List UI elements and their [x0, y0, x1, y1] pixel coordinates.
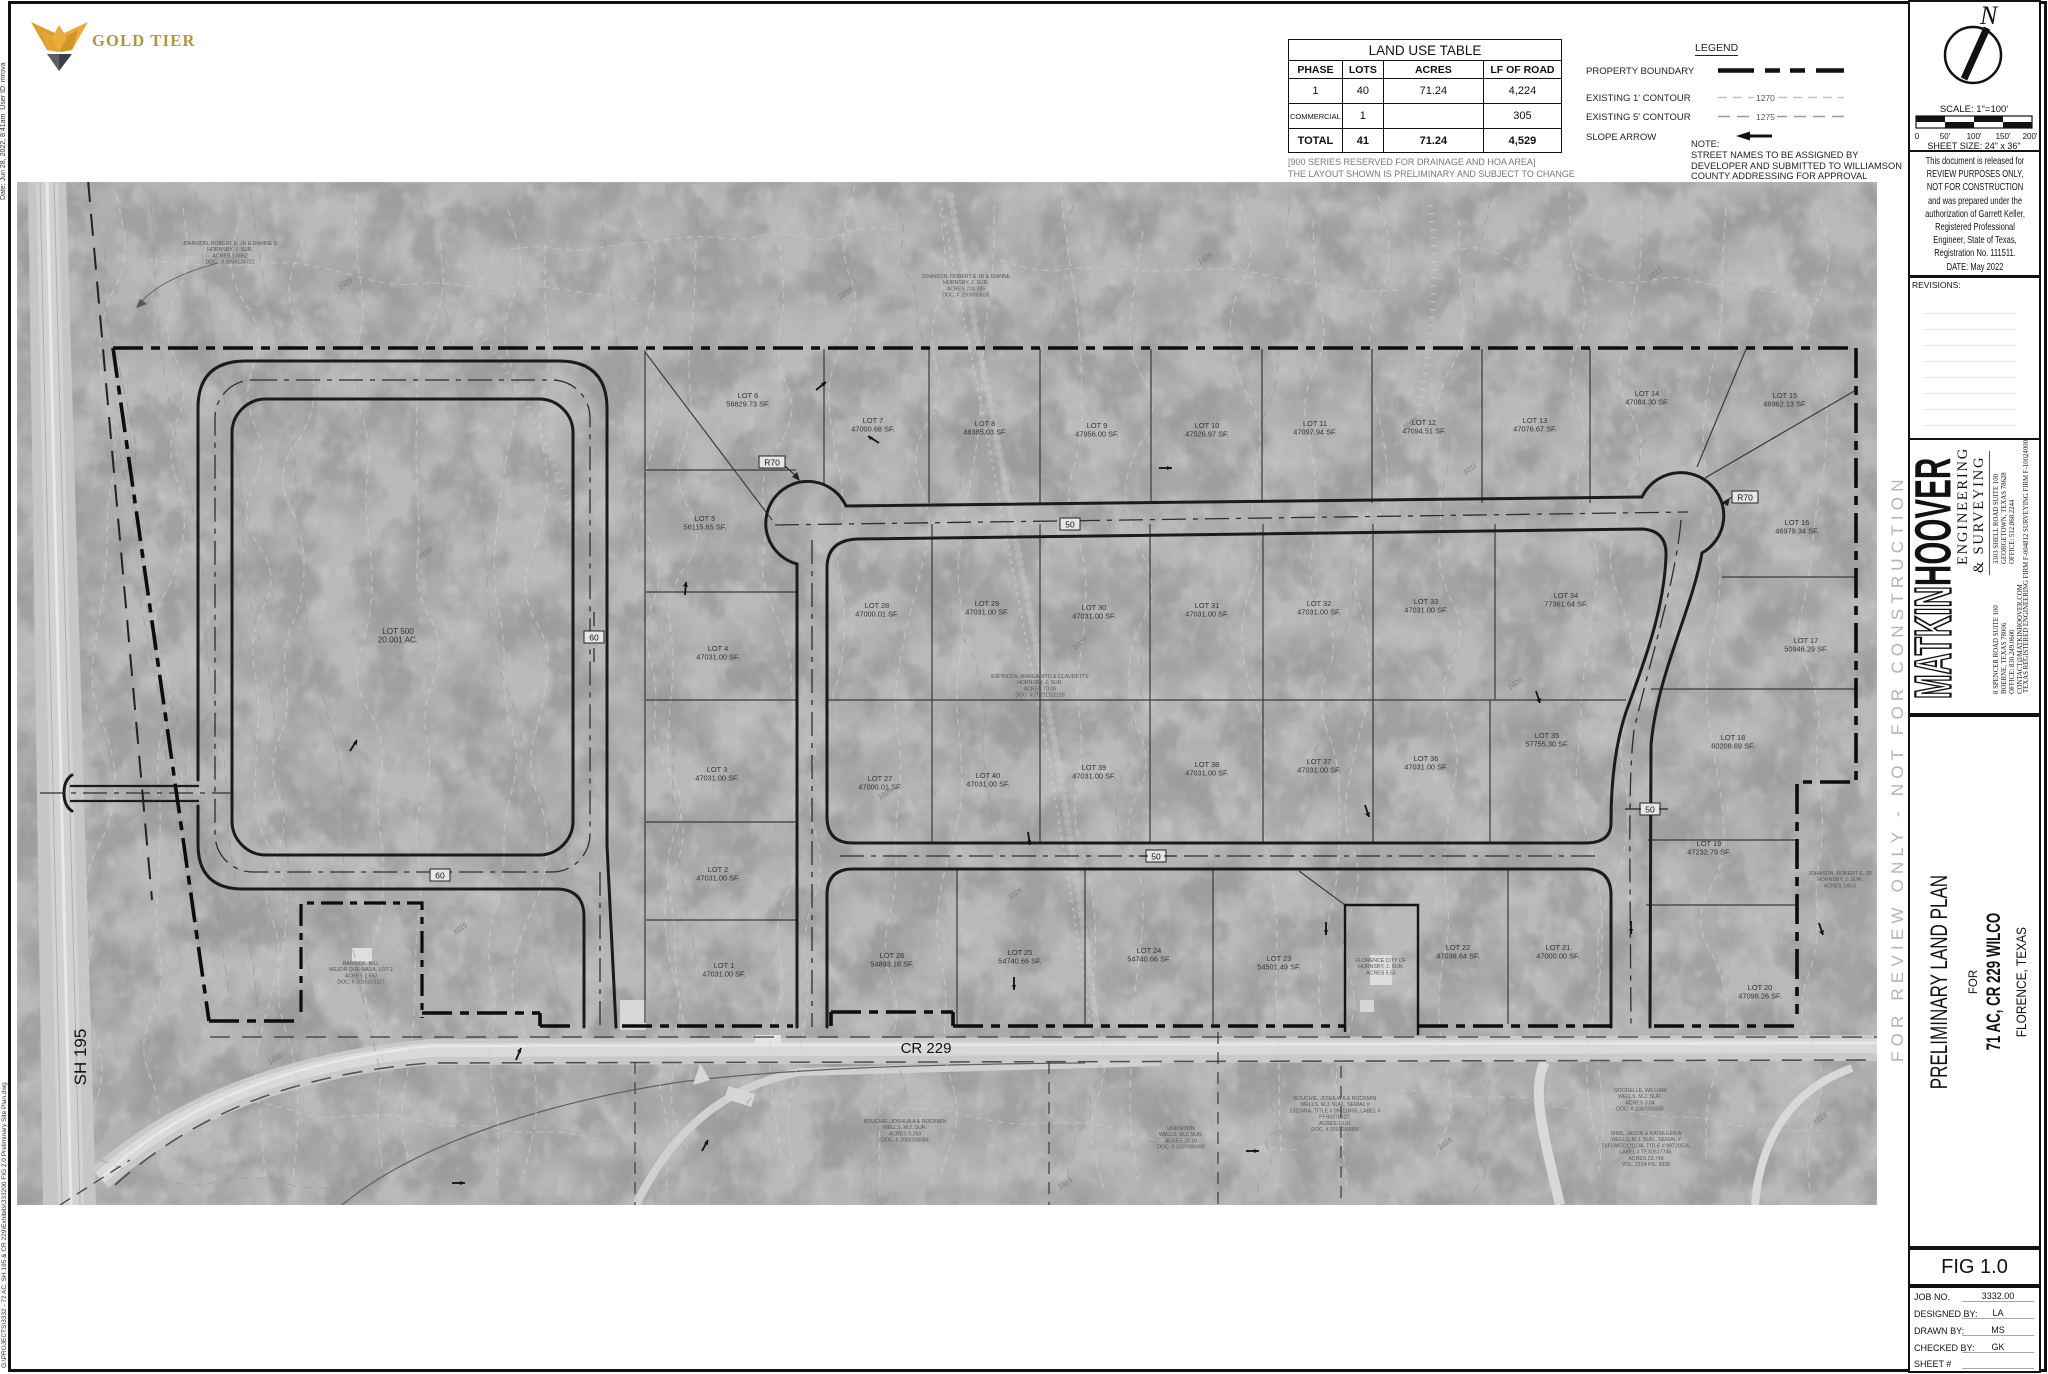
svg-text:0: 0 — [1915, 132, 1920, 141]
svg-text:54740.66 SF.: 54740.66 SF. — [1127, 955, 1171, 964]
svg-text:47031.00 SF.: 47031.00 SF. — [1297, 766, 1341, 775]
svg-text:48385.03 SF.: 48385.03 SF. — [963, 428, 1007, 437]
svg-text:47000.68 SF.: 47000.68 SF. — [851, 425, 895, 434]
svg-text:47031.00 SF.: 47031.00 SF. — [1404, 606, 1448, 615]
svg-text:47031.00 SF.: 47031.00 SF. — [1185, 769, 1229, 778]
svg-text:CR 229: CR 229 — [901, 1040, 952, 1057]
svg-text:47097.94 SF.: 47097.94 SF. — [1293, 428, 1337, 437]
svg-text:47526.97 SF.: 47526.97 SF. — [1185, 430, 1229, 439]
svg-text:60208.69 SF.: 60208.69 SF. — [1711, 742, 1755, 751]
svg-text:60: 60 — [589, 633, 599, 643]
svg-text:57755.30 SF.: 57755.30 SF. — [1525, 740, 1569, 749]
svg-text:54893.18 SF.: 54893.18 SF. — [870, 960, 914, 969]
svg-text:50946.29 SF.: 50946.29 SF. — [1784, 645, 1828, 654]
svg-text:47031.00 SF.: 47031.00 SF. — [965, 608, 1009, 617]
svg-text:SH 195: SH 195 — [71, 1029, 90, 1086]
svg-text:56829.73 SF.: 56829.73 SF. — [726, 400, 770, 409]
svg-text:N: N — [1979, 2, 1999, 30]
svg-text:54740.66 SF.: 54740.66 SF. — [998, 957, 1042, 966]
svg-text:47031.00 SF.: 47031.00 SF. — [966, 780, 1010, 789]
svg-text:47000.01 SF.: 47000.01 SF. — [858, 783, 902, 792]
svg-text:47956.00 SF.: 47956.00 SF. — [1075, 430, 1119, 439]
svg-text:47076.67 SF.: 47076.67 SF. — [1513, 425, 1557, 434]
svg-text:100': 100' — [1967, 132, 1982, 141]
svg-text:46962.13 SF.: 46962.13 SF. — [1763, 400, 1807, 409]
svg-text:R70: R70 — [764, 458, 780, 468]
svg-text:SHEET SIZE: 24" x 36": SHEET SIZE: 24" x 36" — [1927, 141, 2020, 150]
svg-text:200': 200' — [2023, 132, 2038, 141]
svg-text:47038.64 SF.: 47038.64 SF. — [1436, 952, 1480, 961]
svg-text:47094.51 SF.: 47094.51 SF. — [1402, 427, 1446, 436]
svg-text:47031.00 SF.: 47031.00 SF. — [696, 653, 740, 662]
svg-text:50: 50 — [1645, 805, 1655, 815]
svg-text:47031.00 SF.: 47031.00 SF. — [696, 874, 740, 883]
svg-text:R70: R70 — [1737, 493, 1753, 503]
svg-text:56115.65 SF.: 56115.65 SF. — [683, 523, 726, 532]
svg-text:150': 150' — [1996, 132, 2011, 141]
svg-text:47031.00 SF.: 47031.00 SF. — [1297, 608, 1341, 617]
svg-text:47031.00 SF.: 47031.00 SF. — [695, 774, 739, 783]
svg-text:50': 50' — [1940, 132, 1951, 141]
svg-text:50: 50 — [1151, 852, 1161, 862]
svg-text:47098.26 SF.: 47098.26 SF. — [1738, 992, 1782, 1001]
svg-text:77361.64 SF.: 77361.64 SF. — [1544, 600, 1588, 609]
svg-text:50: 50 — [1065, 520, 1075, 530]
svg-text:47084.30 SF.: 47084.30 SF. — [1625, 398, 1669, 407]
svg-text:47031.00 SF.: 47031.00 SF. — [1404, 763, 1448, 772]
svg-text:47031.00 SF.: 47031.00 SF. — [1072, 772, 1116, 781]
svg-text:SCALE: 1"=100': SCALE: 1"=100' — [1940, 104, 2008, 115]
svg-text:47000.01 SF.: 47000.01 SF. — [855, 610, 899, 619]
svg-text:60: 60 — [435, 871, 445, 881]
svg-text:47031.00 SF.: 47031.00 SF. — [1072, 612, 1116, 621]
svg-text:47031.00 SF.: 47031.00 SF. — [702, 970, 746, 979]
svg-text:47000.00 SF.: 47000.00 SF. — [1536, 952, 1580, 961]
svg-text:47031.00 SF.: 47031.00 SF. — [1185, 610, 1229, 619]
svg-text:54501.49 SF.: 54501.49 SF. — [1257, 963, 1301, 972]
svg-text:47232.79 SF.: 47232.79 SF. — [1687, 848, 1731, 857]
svg-text:GOLD TIER: GOLD TIER — [92, 31, 196, 50]
svg-text:20.001 AC.: 20.001 AC. — [378, 636, 419, 645]
svg-text:46979.34 SF.: 46979.34 SF. — [1775, 527, 1819, 536]
